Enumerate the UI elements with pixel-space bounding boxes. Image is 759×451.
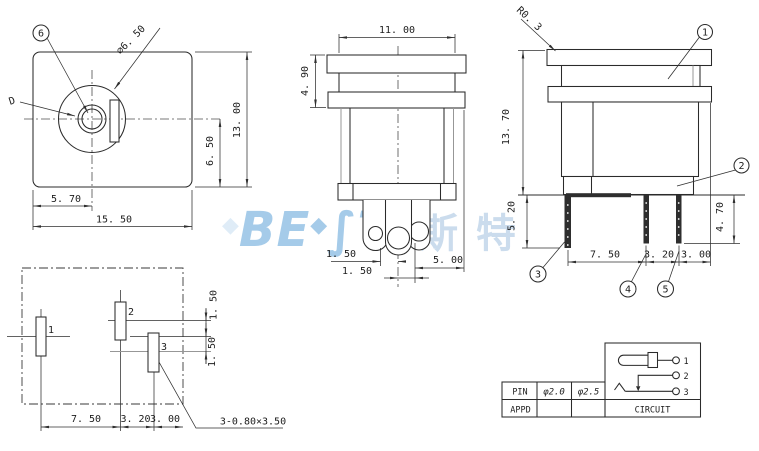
dim-pad-offset-2: 1. 50 <box>207 337 218 367</box>
spec-table: PIN φ2.0 φ2.5 APPD CIRCUIT 1 2 3 <box>502 343 701 417</box>
terminal-1-node <box>673 357 680 364</box>
d-label: D <box>8 95 17 107</box>
lug-left <box>363 200 388 250</box>
terminal-3-node <box>673 388 680 395</box>
pad-3 <box>148 333 159 372</box>
circuit-diagram: 1 2 3 <box>615 353 689 399</box>
dim-pin-offset-2: 1. 50 <box>342 266 372 277</box>
dim-pin-offset-1: 1. 50 <box>326 249 356 260</box>
table-circuit-label: CIRCUIT <box>635 406 671 416</box>
terminal-pin-3 <box>565 193 632 248</box>
dim-front-height: 13. 00 <box>232 102 243 138</box>
table-appd-label: APPD <box>510 406 530 416</box>
dim-flange-height: 4. 90 <box>300 66 311 96</box>
table-pin-label: PIN <box>512 388 527 398</box>
pad-1 <box>36 317 46 356</box>
svg-text:5: 5 <box>662 285 668 296</box>
dim-front-width: 15. 50 <box>96 215 132 226</box>
svg-text:4: 4 <box>625 285 631 296</box>
svg-text:3: 3 <box>684 388 689 398</box>
svg-text:2: 2 <box>738 161 744 172</box>
terminal-pin-5 <box>676 195 682 244</box>
dim-rear-pitch-3: 3. 00 <box>681 250 711 261</box>
balloon-6-label: 6 <box>38 29 44 40</box>
pad-2 <box>115 302 126 340</box>
rear-view: R0. 3 13. 70 5. 20 4. 70 7. 50 3. 20 3. … <box>501 5 749 297</box>
dim-pad-pitch-3: 3. 00 <box>150 414 180 425</box>
drawing-canvas: ◆BE◆∫T 斯特 6 D <box>0 0 759 451</box>
pad-2-label: 2 <box>128 307 134 318</box>
dim-pad-pitch-2: 3. 20 <box>120 414 150 425</box>
svg-text:3: 3 <box>535 270 541 281</box>
barrel-key-window <box>110 100 119 142</box>
plug-barrel-symbol <box>618 355 648 365</box>
dim-pin-length-right: 4. 70 <box>715 202 726 232</box>
side-view: 11. 00 4. 90 1. 50 1. 50 5. 00 <box>300 25 466 287</box>
pad-1-label: 1 <box>48 325 54 336</box>
dim-edge: 5. 00 <box>433 255 463 266</box>
table-pin-dia-1: φ2.0 <box>543 388 565 398</box>
footprint-view: 1 2 3 1. 50 1. 50 3-0.80×3.50 7. 50 <box>7 268 286 431</box>
terminal-pin-4 <box>644 195 650 244</box>
terminal-2-node <box>673 372 680 379</box>
dim-left-to-center: 5. 70 <box>51 194 81 205</box>
dim-rear-pitch-1: 7. 50 <box>590 250 620 261</box>
dim-corner-radius: R0. 3 <box>514 5 544 34</box>
slot-note: 3-0.80×3.50 <box>220 417 286 428</box>
dim-pin-length-left: 5. 20 <box>507 201 518 231</box>
table-pin-dia-2: φ2.5 <box>578 388 600 398</box>
svg-text:2: 2 <box>684 372 689 382</box>
dim-rear-pitch-2: 3. 20 <box>644 250 674 261</box>
svg-text:1: 1 <box>684 357 689 367</box>
dim-pad-pitch-1: 7. 50 <box>71 414 101 425</box>
technical-drawing: 6 D ⌀6. 50 6. 50 13. 00 5. 70 15. 50 <box>0 0 759 451</box>
dim-rear-height: 13. 70 <box>501 109 512 145</box>
dim-center-to-bottom: 6. 50 <box>205 136 216 166</box>
svg-text:1: 1 <box>702 28 708 39</box>
pad-3-label: 3 <box>161 342 167 353</box>
switch-lever-symbol <box>615 383 626 391</box>
front-view: 6 D ⌀6. 50 6. 50 13. 00 5. 70 15. 50 <box>8 24 252 230</box>
contact-arrow <box>636 386 640 391</box>
dim-pad-offset-1: 1. 50 <box>209 290 220 320</box>
dim-side-width: 11. 00 <box>379 25 415 36</box>
